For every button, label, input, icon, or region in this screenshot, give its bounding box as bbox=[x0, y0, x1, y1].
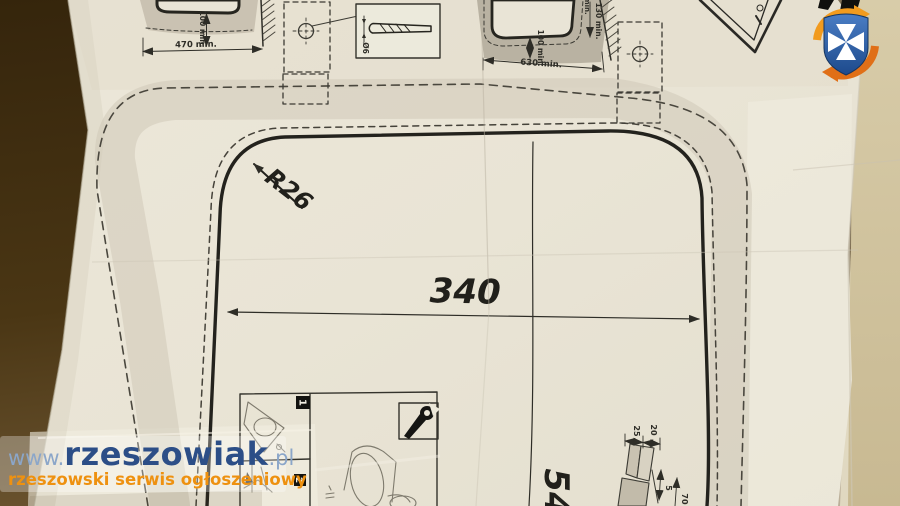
watermark-tagline-row: rzeszowski serwis ogłoszeniowy bbox=[8, 472, 280, 489]
tl-width-label: 470 min. bbox=[175, 40, 217, 51]
section-dim-5: 5 bbox=[664, 485, 673, 491]
scene: R26 340 54 100 min. 470 min. bbox=[0, 0, 900, 506]
rzeszowiak-shield-logo bbox=[810, 0, 882, 88]
top-right-view: min. 130 min. 100 min. 630 min. bbox=[477, 0, 621, 72]
drill-diameter-label: Ø6 bbox=[361, 42, 370, 54]
watermark-tagline: rzeszowski serwis ogłoszeniowy bbox=[8, 470, 307, 489]
step-1-number: 1 bbox=[297, 399, 308, 406]
site-watermark: www.rzeszowiak.pl rzeszowski serwis ogło… bbox=[0, 436, 286, 492]
photo-of-sink-template: R26 340 54 100 min. 470 min. bbox=[0, 0, 900, 506]
cropped-text-fragment bbox=[818, 0, 834, 10]
section-dim-20: 20 bbox=[649, 424, 658, 436]
width-dimension-label: 340 bbox=[429, 271, 501, 313]
height-dimension-label: 54 bbox=[536, 468, 576, 506]
paper-right-tone bbox=[742, 94, 852, 506]
section-dim-25: 25 bbox=[632, 425, 641, 437]
drill-detail: Ø6 bbox=[356, 4, 440, 58]
watermark-url: www.rzeszowiak.pl bbox=[8, 438, 280, 471]
wall-plug-icon bbox=[369, 24, 431, 34]
watermark-www: www. bbox=[8, 446, 64, 470]
section-dim-70: 70 bbox=[680, 493, 689, 505]
watermark-pl: .pl bbox=[268, 446, 294, 470]
watermark-brand: rzeszowiak bbox=[64, 435, 268, 473]
logo-graphic bbox=[810, 0, 882, 88]
